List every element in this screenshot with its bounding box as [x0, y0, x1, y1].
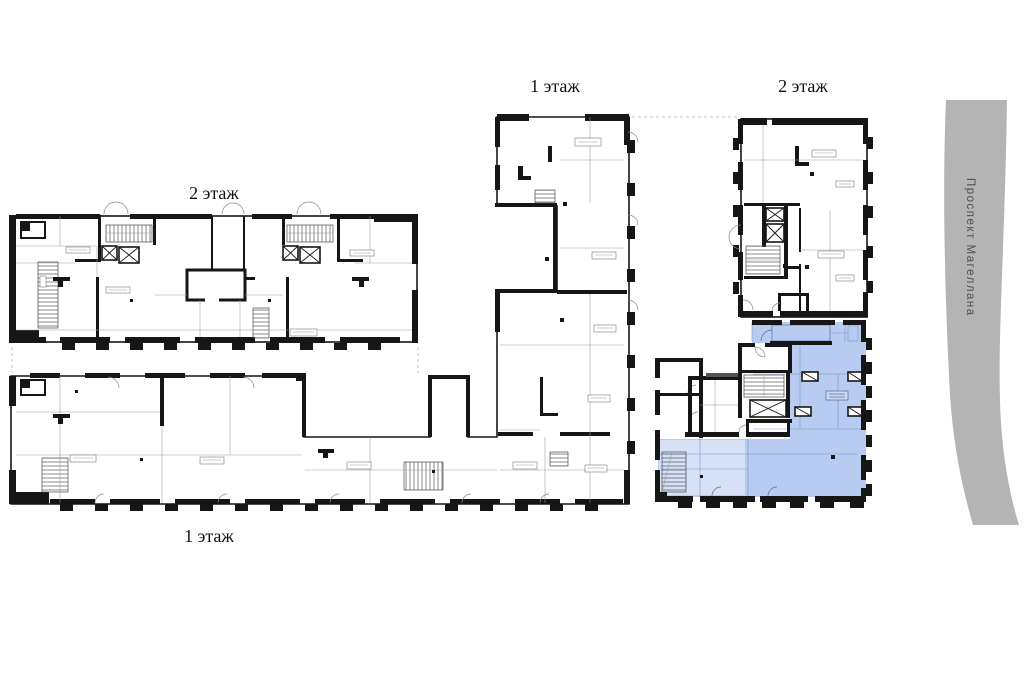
- stair-core-left: [75, 202, 156, 263]
- elevator-icon: [766, 208, 784, 242]
- label-floor1-top: 1 этаж: [530, 76, 580, 97]
- stair-core: [738, 343, 792, 433]
- dashed-connectors: [12, 117, 739, 373]
- floorplan-page: 1 этаж 2 этаж 2 этаж 1 этаж Проспект Маг…: [0, 0, 1030, 677]
- label-floor1-bottom: 1 этаж: [184, 526, 234, 547]
- pilasters-right: [866, 338, 872, 496]
- stairs-icon: [42, 458, 68, 492]
- floorplan-left-floor2: [9, 202, 418, 350]
- elevator-icon: [283, 246, 320, 263]
- label-floor2-right: 2 этаж: [778, 76, 828, 97]
- elevator-icon: [102, 246, 139, 263]
- stairs-icon: [38, 262, 58, 328]
- pilasters-bottom: [678, 502, 864, 508]
- pilasters-bottom: [62, 343, 381, 350]
- floorplan-left-floor1: [9, 114, 638, 511]
- stairs-icon: [535, 190, 555, 203]
- label-floor2-left: 2 этаж: [189, 183, 239, 204]
- left-rooms: [656, 358, 703, 438]
- stairs-icon: [550, 452, 568, 466]
- floorplan-right-floor1: [655, 320, 872, 508]
- pilasters-bottom: [60, 504, 598, 511]
- floorplan-right-floor2: [729, 118, 873, 317]
- street-name-label: Проспект Магеллана: [950, 178, 976, 378]
- stairs-icon: [662, 452, 686, 492]
- stairs-icon: [404, 462, 443, 490]
- elevator-icon: [750, 400, 786, 417]
- unit-area-label: [826, 391, 848, 400]
- site-plan-canvas: [0, 0, 1030, 677]
